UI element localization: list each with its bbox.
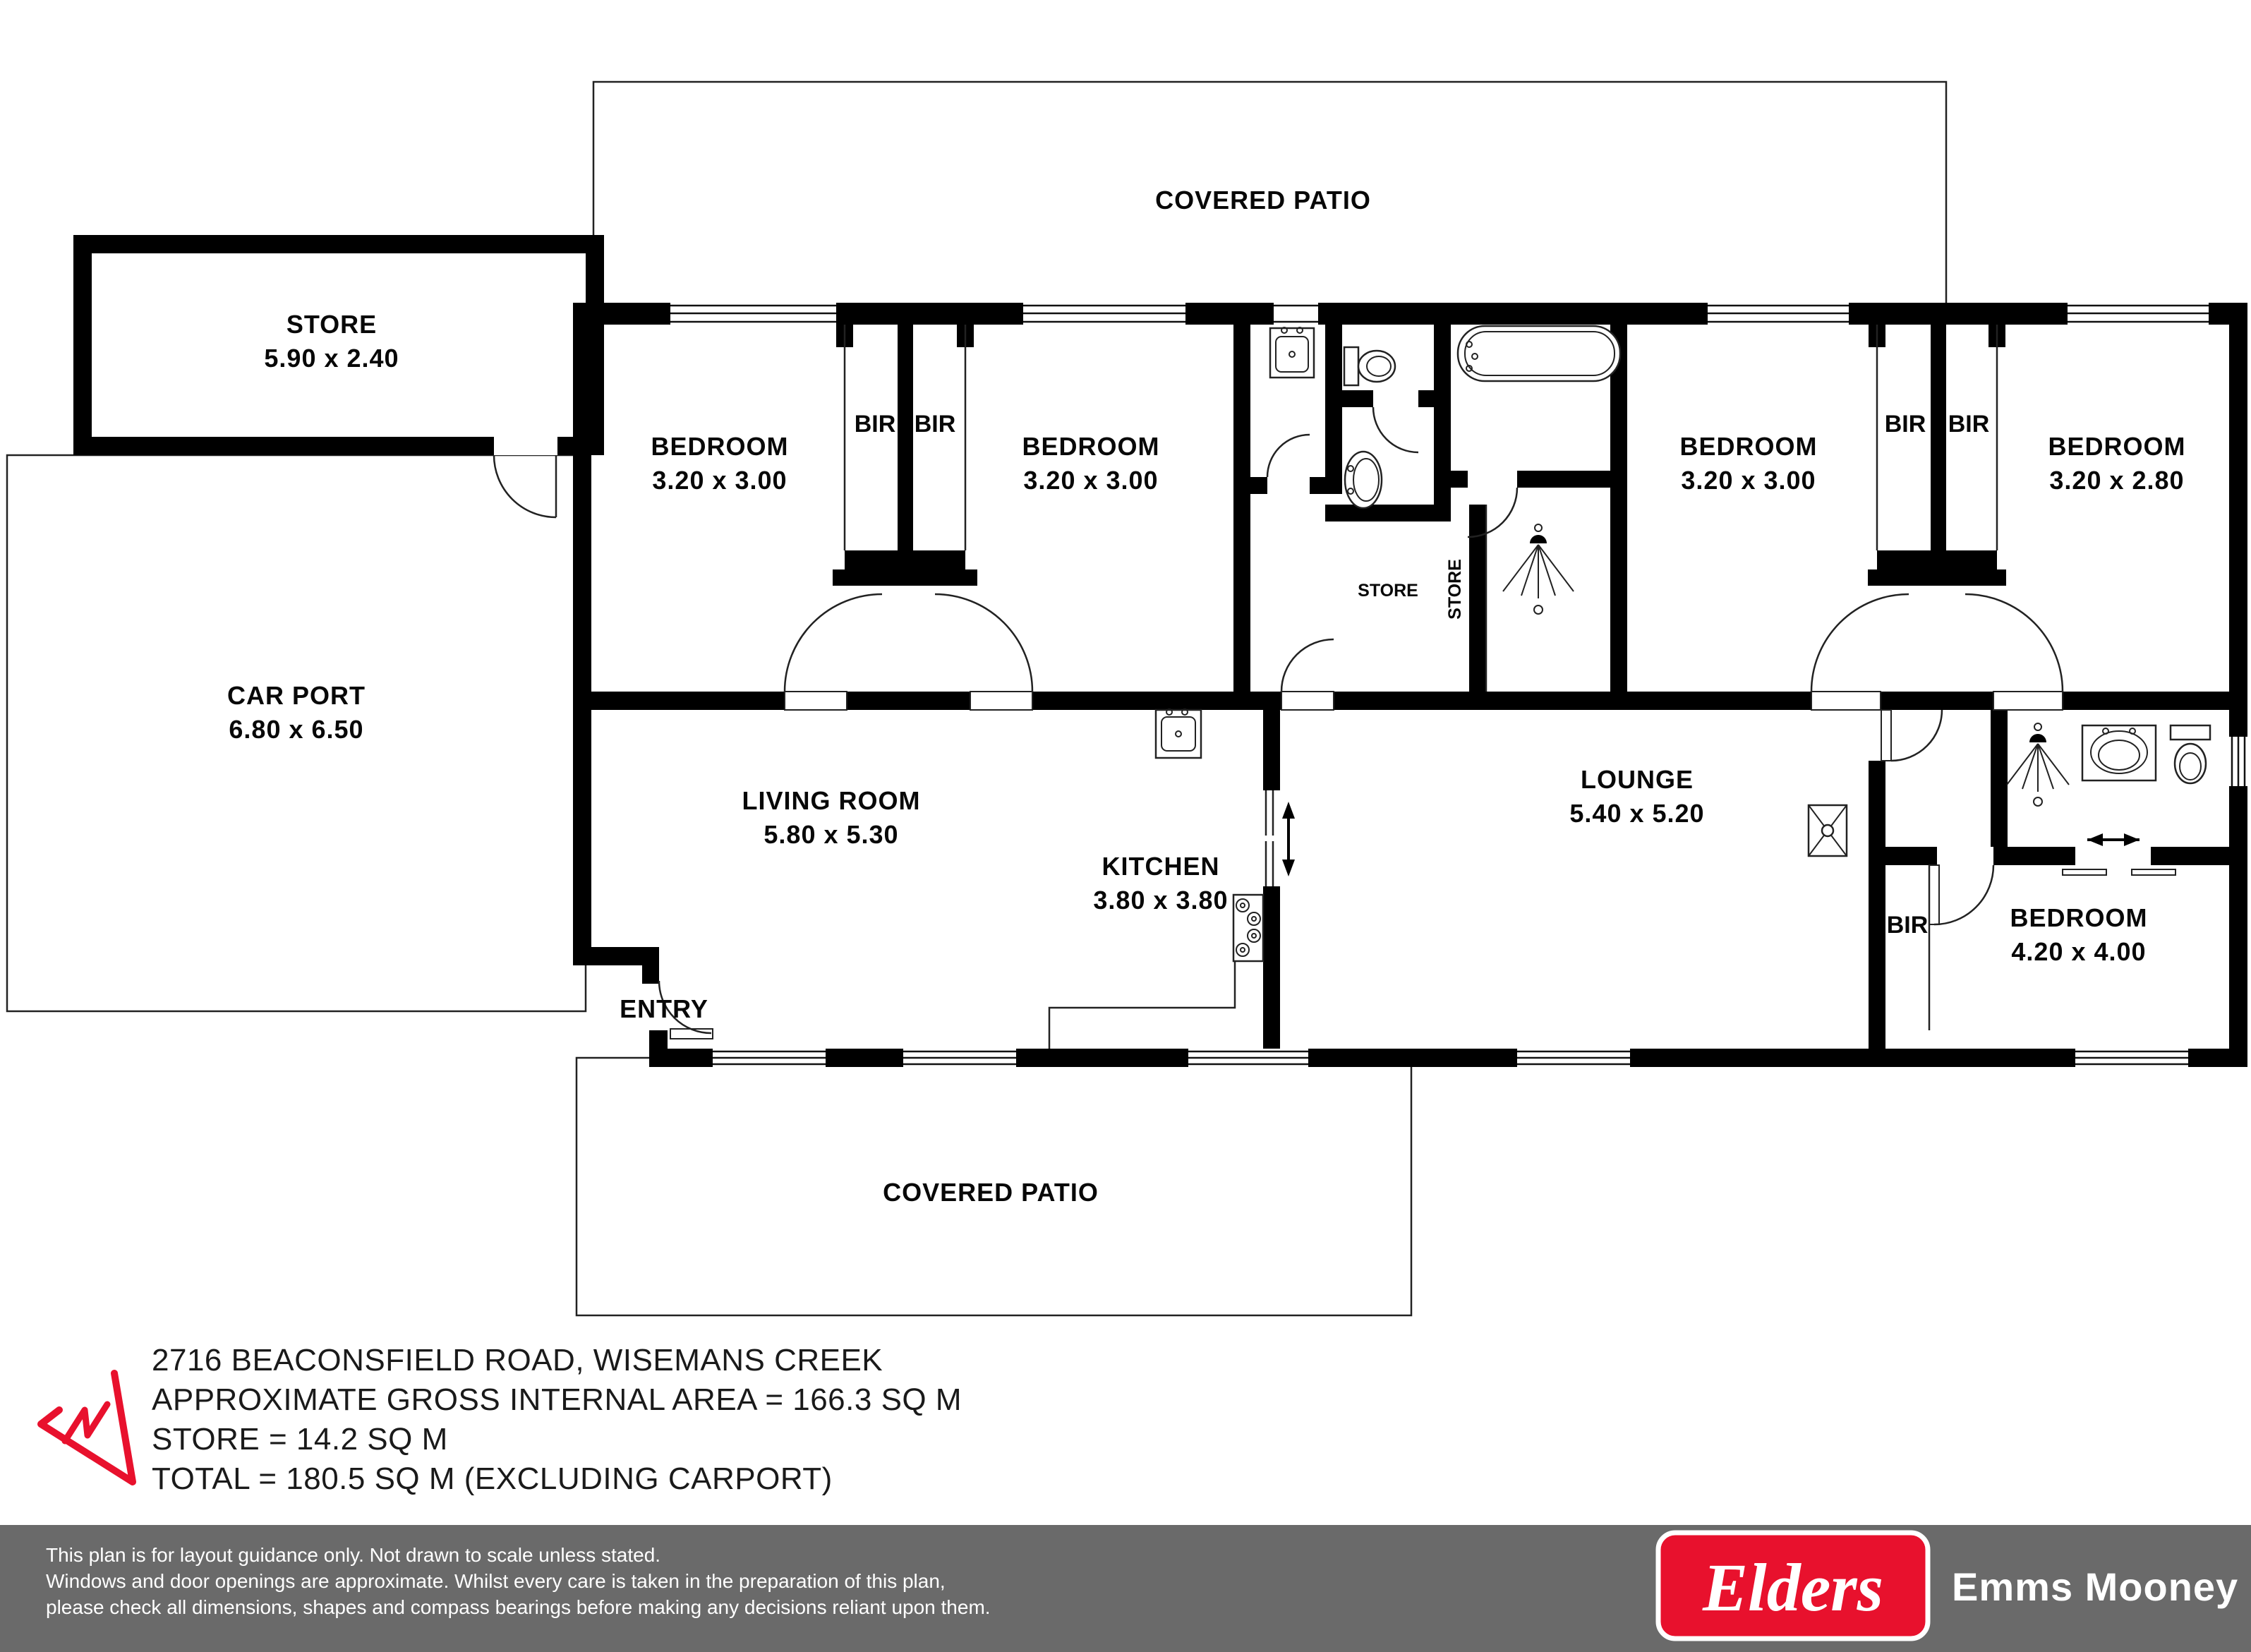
room-label-patio-top: COVERED PATIO	[1155, 186, 1371, 215]
door-leaf	[1929, 865, 1939, 924]
door-arc	[1373, 407, 1418, 452]
room-dims-bedroom-3: 3.20 x 3.00	[1681, 466, 1816, 495]
room-label-entry: ENTRY	[620, 994, 708, 1023]
sliding-door-arrow-icon	[2087, 833, 2140, 846]
door-arc	[494, 455, 556, 517]
summary-address: 2716 BEACONSFIELD ROAD, WISEMANS CREEK	[152, 1343, 883, 1377]
room-label-lounge: LOUNGE	[1581, 765, 1694, 794]
room-label-kitchen: KITCHEN	[1102, 852, 1220, 881]
room-label-master-bedroom: BEDROOM	[2010, 903, 2148, 932]
door-arc	[1965, 594, 2063, 692]
sliding-door-opening	[2075, 847, 2151, 865]
door-leaf	[970, 692, 1032, 710]
elders-logo-text: Elders	[1702, 1550, 1883, 1625]
closet-label-bir-2: BIR	[915, 411, 956, 438]
window	[670, 303, 836, 325]
room-label-bedroom-3: BEDROOM	[1680, 432, 1818, 461]
door-arc	[785, 594, 882, 692]
room-label-patio-bottom: COVERED PATIO	[883, 1178, 1099, 1207]
room-label-bedroom-1: BEDROOM	[651, 432, 789, 461]
closet-label-bir-3: BIR	[1885, 411, 1926, 438]
closet-label-bir-4: BIR	[1948, 411, 1990, 438]
door-arc	[1281, 639, 1334, 692]
door-opening	[1373, 390, 1418, 407]
ensuite-toilet-icon	[2171, 725, 2210, 783]
elders-logo: Elders	[1658, 1533, 1928, 1639]
door-arc	[1811, 594, 1909, 692]
address-summary: 2716 BEACONSFIELD ROAD, WISEMANS CREEK A…	[152, 1343, 962, 1496]
summary-total-area: TOTAL = 180.5 SQ M (EXCLUDING CARPORT)	[152, 1461, 833, 1496]
window	[1188, 1049, 1308, 1067]
room-dims-bedroom-1: 3.20 x 3.00	[652, 466, 787, 495]
cooktop-icon	[1233, 895, 1263, 961]
door-leaf	[1993, 692, 2063, 710]
window	[1708, 303, 1849, 325]
kitchen-bench	[1049, 961, 1235, 1049]
north-arrow-icon	[41, 1373, 133, 1482]
vanity-basin-icon	[1345, 452, 1382, 508]
ensuite-shower-icon	[2007, 723, 2069, 806]
summary-store-area: STORE = 14.2 SQ M	[152, 1422, 448, 1457]
bathtub-icon	[1458, 326, 1620, 381]
door-opening	[494, 437, 557, 455]
room-dims-master-bedroom: 4.20 x 4.00	[2011, 937, 2146, 966]
window	[2229, 737, 2247, 786]
room-dims-store-building: 5.90 x 2.40	[264, 344, 399, 373]
closet-label-bir-5: BIR	[1887, 912, 1929, 939]
sliding-door-panel	[2063, 869, 2106, 875]
window	[713, 1049, 826, 1067]
laundry-sink-icon	[1270, 327, 1314, 378]
window	[903, 1049, 1016, 1067]
closet-label-store-2: STORE	[1445, 559, 1465, 620]
window	[1023, 303, 1185, 325]
footer-bar: This plan is for layout guidance only. N…	[0, 1525, 2251, 1652]
door-opening	[1267, 477, 1310, 494]
window	[2068, 303, 2209, 325]
window	[1517, 1049, 1630, 1067]
door-arc	[935, 594, 1032, 692]
footer-disclaimer-line-3: please check all dimensions, shapes and …	[46, 1596, 991, 1618]
closet-label-store-1: STORE	[1358, 581, 1418, 601]
shower-icon	[1503, 524, 1574, 614]
door-leaf	[1281, 692, 1334, 710]
room-dims-lounge: 5.40 x 5.20	[1569, 799, 1704, 828]
sliding-door-panel	[2132, 869, 2175, 875]
agency-name: Emms Mooney	[1952, 1564, 2238, 1609]
room-label-bedroom-4: BEDROOM	[2048, 432, 2186, 461]
door-arc	[1891, 710, 1942, 761]
room-label-store-building: STORE	[286, 310, 377, 339]
ensuite-vanity-icon	[2082, 725, 2156, 780]
room-dims-carport: 6.80 x 6.50	[229, 715, 363, 744]
door-leaf	[785, 692, 847, 710]
door-opening	[1468, 471, 1517, 488]
summary-gross-internal: APPROXIMATE GROSS INTERNAL AREA = 166.3 …	[152, 1382, 962, 1417]
kitchen-sink-icon	[1156, 709, 1201, 758]
door-arc	[1267, 435, 1310, 477]
kitchen-pass-arrow-icon	[1282, 802, 1295, 876]
door-leaf	[1881, 710, 1891, 761]
room-dims-living: 5.80 x 5.30	[764, 820, 898, 849]
room-label-bedroom-2: BEDROOM	[1022, 432, 1160, 461]
window	[1274, 303, 1318, 325]
room-dims-kitchen: 3.80 x 3.80	[1093, 886, 1228, 915]
walls	[73, 235, 2247, 1067]
room-label-carport: CAR PORT	[227, 681, 366, 710]
door-arc	[1934, 865, 1993, 924]
footer-disclaimer-line-1: This plan is for layout guidance only. N…	[46, 1544, 660, 1566]
room-dims-bedroom-2: 3.20 x 3.00	[1023, 466, 1158, 495]
window	[2075, 1049, 2188, 1067]
room-label-living: LIVING ROOM	[742, 786, 921, 815]
floor-plan: COVERED PATIO STORE 5.90 x 2.40 CAR PORT…	[0, 0, 2251, 1652]
toilet-icon	[1344, 347, 1395, 385]
door-leaf	[1811, 692, 1881, 710]
floorplan-page: COVERED PATIO STORE 5.90 x 2.40 CAR PORT…	[0, 0, 2251, 1652]
joinery-lines	[845, 325, 1997, 1049]
closet-label-bir-1: BIR	[855, 411, 896, 438]
footer-disclaimer-line-2: Windows and door openings are approximat…	[46, 1570, 946, 1592]
heater-icon	[1809, 805, 1847, 856]
room-dims-bedroom-4: 3.20 x 2.80	[2049, 466, 2184, 495]
